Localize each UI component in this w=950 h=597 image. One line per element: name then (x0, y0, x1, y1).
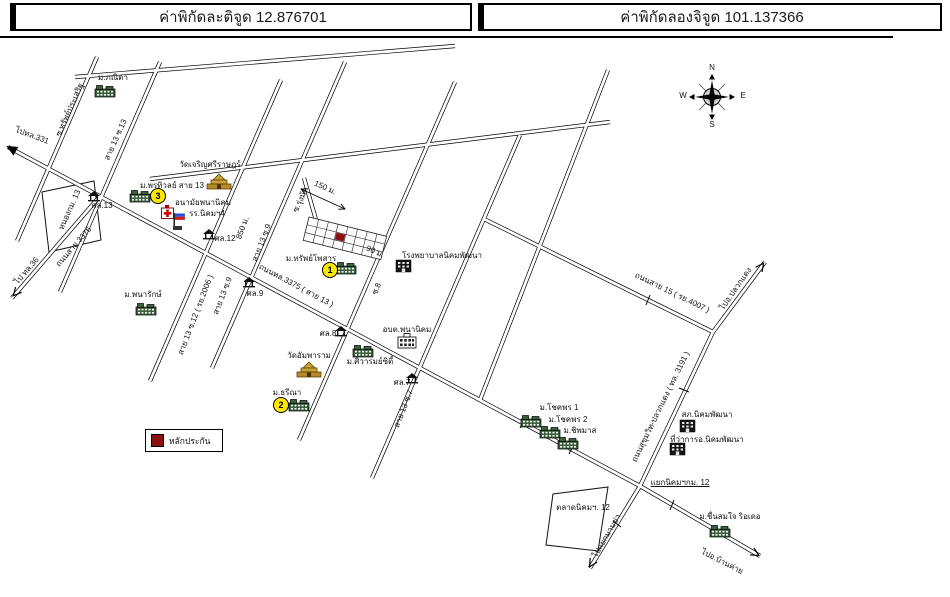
compass-west-arrow (689, 94, 695, 100)
road-fill-sai13-soi9 (212, 62, 345, 368)
roads-casing (8, 46, 765, 568)
anamai-cross-icon (162, 205, 174, 219)
wat-charoensri-temple-icon (207, 174, 231, 189)
obt-govt-icon (398, 334, 416, 349)
compass-east-arrow (730, 94, 736, 100)
m-chokphon2-village-icon (540, 427, 560, 439)
road-fill-to-bankhai (640, 486, 760, 556)
hospital-dark-icon (396, 260, 411, 272)
road-fill-sai13-soi12-ry2006 (150, 80, 281, 381)
building-icons (88, 86, 730, 538)
road-fill-soi-upper-right (480, 70, 608, 400)
road-fill-to-pluakdaeng (713, 262, 765, 332)
housing-grid (303, 217, 386, 260)
road-fill-top-road-a (75, 46, 455, 77)
m-chuensomjai-village-icon (710, 526, 730, 538)
m-threena-village-icon (289, 400, 309, 412)
road-fill-thl3191-sukhumvit-pluakdaeng (640, 332, 713, 486)
market-polygon (546, 487, 608, 551)
market-block-outline (546, 487, 608, 551)
m-siwarom-village-icon (353, 346, 373, 358)
m-chipamas-village-icon (558, 438, 578, 450)
wat-amphawaram-temple-icon (297, 362, 321, 377)
legend-box: หลักประกัน (145, 429, 223, 452)
compass-south-arrow (709, 115, 715, 121)
m-phanita-village-icon (95, 86, 115, 98)
m-porntiwan-village-icon (130, 191, 150, 203)
m-chokphon1-village-icon (521, 416, 541, 428)
map-page: ค่าพิกัดละติจูด 12.876701 ค่าพิกัดลองจิจ… (0, 0, 950, 597)
legend-collateral-swatch (151, 434, 164, 447)
legend-collateral-label: หลักประกัน (169, 434, 210, 448)
map-canvas (0, 0, 950, 597)
road-fill-top-road-b (150, 122, 610, 179)
roads-fill (8, 46, 765, 568)
police-dark-icon (680, 420, 695, 432)
compass-north-arrow (709, 74, 715, 80)
m-sapphosan-village-icon (336, 263, 356, 275)
compass-rose (689, 74, 735, 120)
road-fill-sai15-ry4007 (484, 219, 713, 332)
road-fill-sai13-soi7 (372, 135, 520, 478)
housing-plots-grid (303, 217, 386, 260)
school-nikhom4-flag-icon (173, 213, 185, 230)
district-office-dark-icon (670, 443, 685, 455)
m-panarak-village-icon (136, 304, 156, 316)
road-fill-soi-rungmat-stub (304, 178, 316, 220)
road-fill-sai13-soi8 (299, 82, 455, 440)
